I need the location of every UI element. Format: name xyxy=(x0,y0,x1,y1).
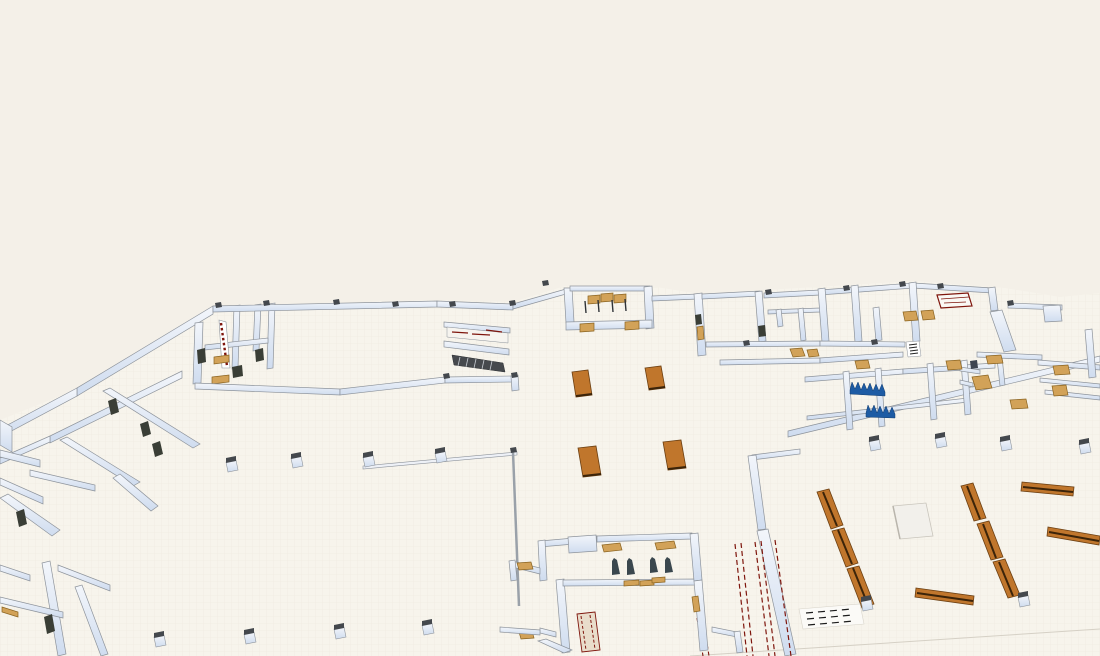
door-opening xyxy=(758,325,766,337)
column-cap xyxy=(392,301,399,307)
wall-h1 xyxy=(706,341,820,347)
scene-canvas[interactable] xyxy=(0,0,1100,656)
lamp-post xyxy=(585,301,586,313)
desk-tan xyxy=(652,577,665,583)
door-panel-tan xyxy=(986,355,1003,364)
door-opening xyxy=(970,360,978,369)
cabinet-tan xyxy=(601,293,613,302)
column-cap xyxy=(510,447,517,453)
room-center-west-wall xyxy=(564,288,574,323)
striped-panel xyxy=(906,341,921,357)
wall-bc-west xyxy=(538,540,547,581)
desk-tan xyxy=(624,580,639,586)
column-cap xyxy=(937,283,944,289)
room-center-north-wall xyxy=(570,286,650,291)
desk-tan xyxy=(212,375,229,384)
3d-model-viewport[interactable] xyxy=(0,0,1100,656)
door-opening xyxy=(232,365,243,378)
column-cap xyxy=(215,302,222,308)
door-panel-tan xyxy=(580,323,594,332)
column-cap xyxy=(443,373,450,379)
table-orange xyxy=(572,370,592,397)
door-panel-tan xyxy=(1010,399,1028,409)
column-cap xyxy=(509,300,516,306)
door-panel-tan xyxy=(903,311,918,321)
column-cap xyxy=(843,285,850,291)
door-panel-tan xyxy=(807,349,819,357)
door-panel-tan xyxy=(921,310,935,320)
wall-ne-jut xyxy=(1043,305,1062,322)
door-opening xyxy=(197,348,206,364)
column-cap xyxy=(765,289,772,295)
door-panel-tan xyxy=(697,326,704,340)
column-cap xyxy=(1007,300,1014,306)
column-cap xyxy=(333,299,340,305)
desk-tan xyxy=(517,562,533,570)
door-panel-tan xyxy=(855,360,870,369)
door-opening xyxy=(255,348,264,362)
desk-tan xyxy=(655,541,676,550)
lamp-post xyxy=(598,300,599,312)
cabinet-tan xyxy=(614,294,626,303)
desk-tan xyxy=(214,355,229,364)
column-cap xyxy=(542,280,549,286)
door-panel-tan xyxy=(1052,385,1068,396)
desk-tan xyxy=(602,543,622,552)
door-panel-tan xyxy=(625,321,639,330)
door-panel-tan xyxy=(946,360,962,370)
door-panel-tan xyxy=(790,348,805,357)
wall-h1-2 xyxy=(820,341,905,347)
wall-corridor-south-3 xyxy=(445,376,513,383)
closet-box xyxy=(568,535,597,553)
column-cap xyxy=(263,300,270,306)
scene-shapes xyxy=(0,280,1100,656)
lamp-post xyxy=(612,300,613,312)
table-red-frame xyxy=(937,293,972,308)
door-panel-tan xyxy=(1053,365,1070,375)
lamp-post xyxy=(625,299,626,311)
door-opening xyxy=(695,314,702,325)
column-cap xyxy=(871,339,878,345)
door-panel-tan xyxy=(972,375,992,390)
column-cap xyxy=(743,340,750,346)
column-cap xyxy=(449,301,456,307)
column-cap xyxy=(511,372,518,378)
column-cap xyxy=(899,281,906,287)
